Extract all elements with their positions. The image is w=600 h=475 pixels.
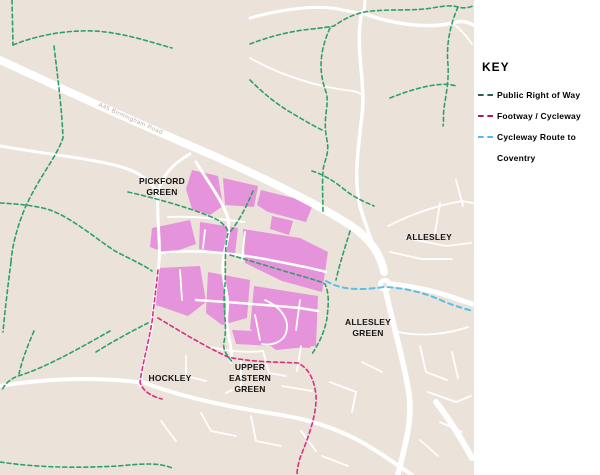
place-label-hockley: HOCKLEY (149, 373, 192, 384)
key-item-cycleway-route-line2: Coventry (478, 153, 535, 163)
place-label-allesley: ALLESLEY (406, 232, 452, 243)
map-screenshot: A45 Birmingham Road (0, 0, 600, 475)
public-right-of-way-dash-swatch (478, 94, 493, 96)
key-item-label: Footway / Cycleway (497, 111, 581, 121)
roundabout (378, 278, 392, 292)
key-item-footway-cycleway: Footway / Cycleway (478, 111, 581, 121)
place-label-pickford-green: PICKFORD GREEN (139, 176, 185, 198)
key-item-label: Coventry (497, 153, 535, 163)
key-title: KEY (482, 60, 510, 74)
cycleway-route-dash-swatch (478, 136, 493, 138)
footway-cycleway-dash-swatch (478, 115, 493, 117)
key-item-cycleway-route: Cycleway Route to (478, 132, 576, 142)
key-panel: KEY Public Right of Way Footway / Cyclew… (474, 0, 600, 475)
key-item-public-right-of-way: Public Right of Way (478, 90, 580, 100)
key-item-label: Public Right of Way (497, 90, 580, 100)
place-label-upper-eastern-green: UPPER EASTERN GREEN (229, 362, 271, 395)
key-item-label: Cycleway Route to (497, 132, 576, 142)
place-label-allesley-green: ALLESLEY GREEN (345, 317, 391, 339)
